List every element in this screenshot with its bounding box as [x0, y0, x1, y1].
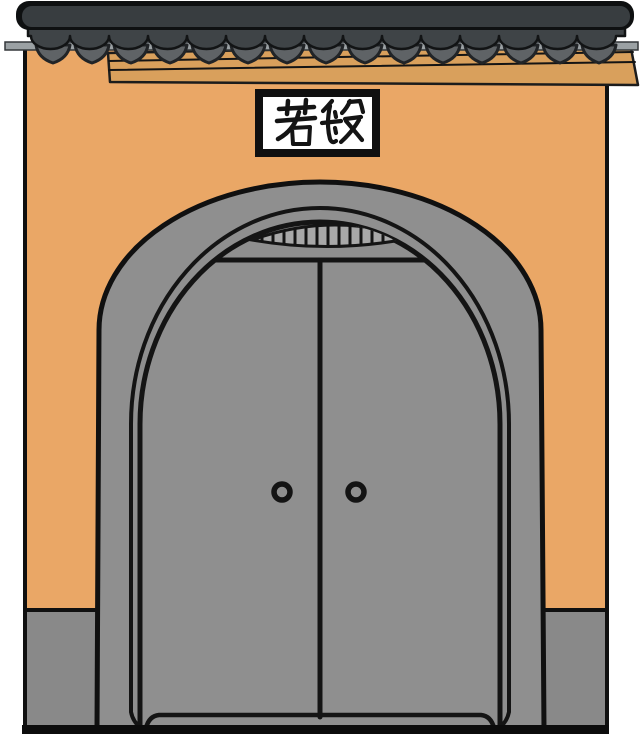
arch-gate — [97, 182, 544, 729]
ridge-bar — [21, 5, 631, 28]
gate-illustration: 若般 — [0, 0, 640, 735]
ground-line — [22, 725, 609, 734]
name-plaque: 若般 — [255, 89, 380, 157]
